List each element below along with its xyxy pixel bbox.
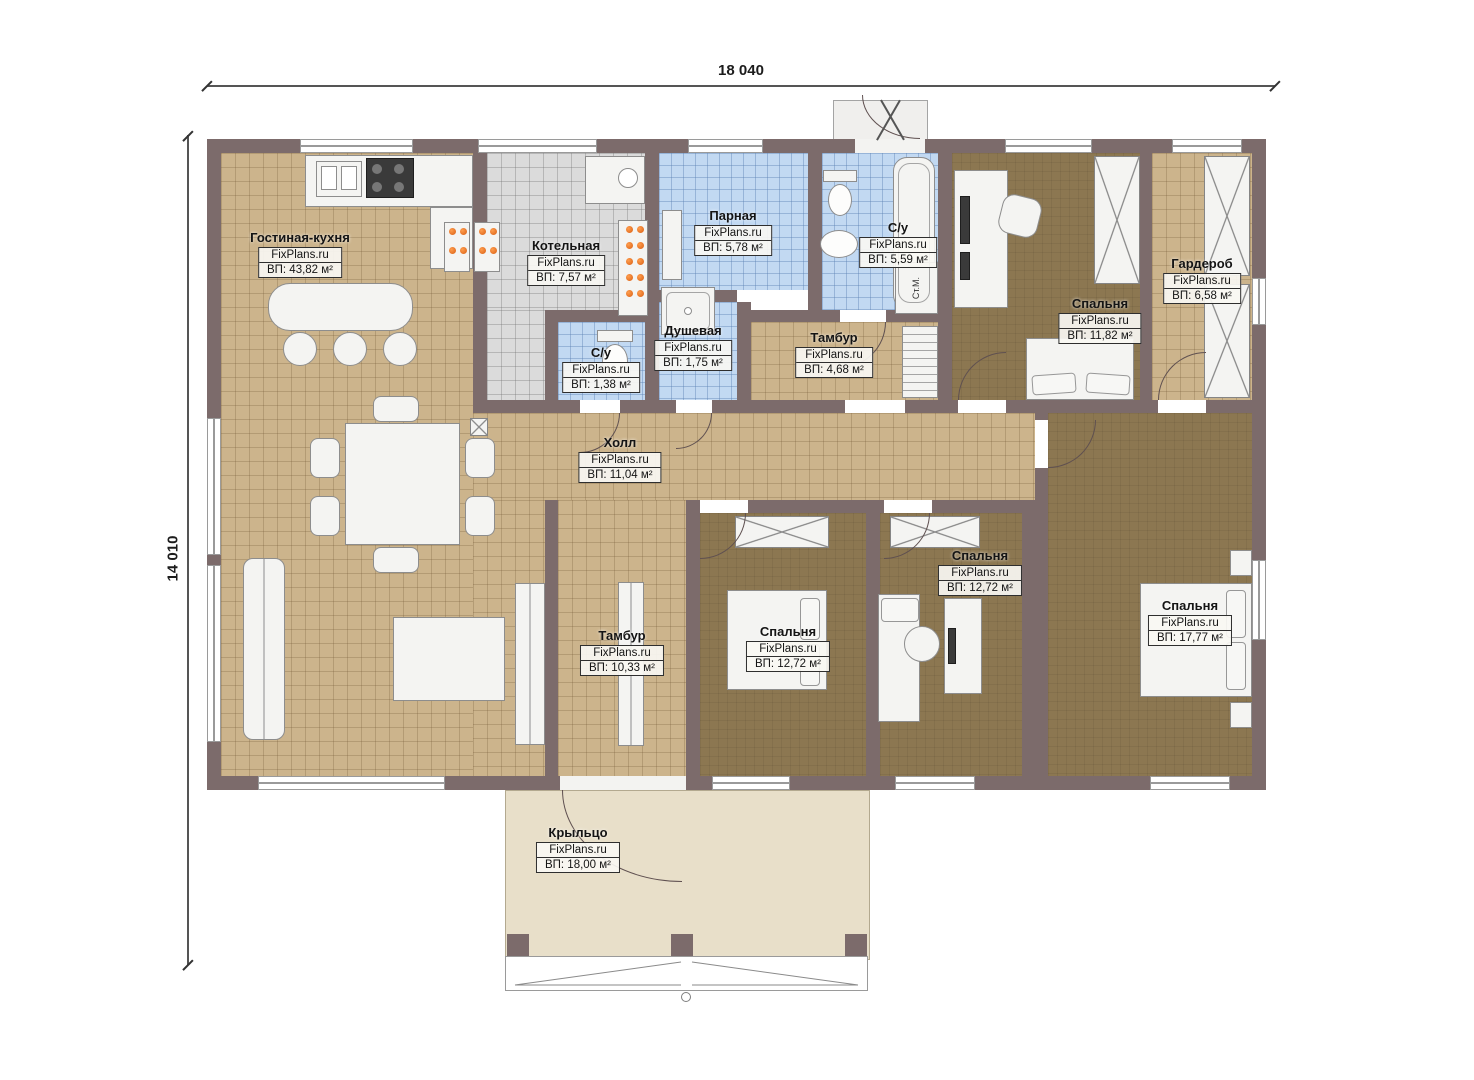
- room-label-boiler: Котельная FixPlans.ruВП: 7,57 м²: [527, 238, 605, 286]
- window: [1172, 139, 1242, 153]
- wall-segment: [1206, 400, 1252, 413]
- window: [1252, 560, 1266, 640]
- porch-pillar: [845, 934, 867, 956]
- wall-segment: [1006, 400, 1158, 413]
- wall-segment: [686, 500, 700, 776]
- wall-segment: [905, 400, 958, 413]
- dining-table: [345, 423, 460, 545]
- window: [207, 418, 221, 555]
- pillow: [1031, 372, 1076, 395]
- pillow: [881, 598, 919, 622]
- toilet-tank: [597, 330, 633, 342]
- dining-chair: [465, 496, 495, 536]
- nightstand: [1230, 550, 1252, 576]
- steam-bench: [662, 210, 682, 280]
- wardrobe: [735, 516, 829, 548]
- desk-monitor: [960, 196, 970, 244]
- wall-segment: [620, 400, 676, 413]
- tv-console: [515, 583, 545, 745]
- porch-pillar: [507, 934, 529, 956]
- room-label-hall: Холл FixPlans.ruВП: 11,04 м²: [578, 435, 661, 483]
- wall-segment: [712, 400, 845, 413]
- washing-machine-label: Ст.М.: [896, 264, 936, 312]
- wardrobe: [1094, 156, 1140, 284]
- window: [300, 139, 413, 153]
- wall-segment: [473, 400, 580, 413]
- manifold-valves: [449, 228, 467, 254]
- window: [207, 565, 221, 742]
- porch-pillar: [671, 934, 693, 956]
- dining-chair: [310, 496, 340, 536]
- room-label-bedroom-1: Спальня FixPlans.ruВП: 12,72 м²: [746, 624, 830, 672]
- bar-stool: [333, 332, 367, 366]
- stove-burner: [372, 182, 382, 192]
- pillow: [1226, 642, 1246, 690]
- wall-segment: [1140, 153, 1152, 400]
- hall-bench: [902, 326, 938, 398]
- room-label-steam-room: Парная FixPlans.ruВП: 5,78 м²: [694, 208, 772, 256]
- washbasin: [820, 230, 858, 258]
- toilet-bowl: [828, 184, 852, 216]
- room-label-bedroom-2: Спальня FixPlans.ruВП: 12,72 м²: [938, 548, 1022, 596]
- wall-segment: [1035, 468, 1048, 776]
- room-label-vestibule-bottom: Тамбур FixPlans.ruВП: 10,33 м²: [580, 628, 664, 676]
- dimension-line-left: [187, 135, 189, 965]
- dining-chair: [373, 396, 419, 422]
- shower-drain: [684, 307, 692, 315]
- room-label-wc-small: С/у FixPlans.ruВП: 1,38 м²: [562, 345, 640, 393]
- room-label-bedroom-right: Спальня FixPlans.ruВП: 17,77 м²: [1148, 598, 1232, 646]
- stove-burner: [394, 182, 404, 192]
- kitchen-island: [268, 283, 413, 331]
- room-label-bedroom-topright: Спальня FixPlans.ruВП: 11,82 м²: [1058, 296, 1141, 344]
- window: [1150, 776, 1230, 790]
- wall-segment: [545, 322, 558, 400]
- window: [895, 776, 975, 790]
- manifold-valves: [479, 228, 497, 254]
- coffee-table: [393, 617, 505, 701]
- wall-segment: [748, 500, 884, 513]
- bar-stool: [283, 332, 317, 366]
- floor-boiler-ext: [487, 310, 545, 400]
- dining-chair: [465, 438, 495, 478]
- dimension-line-top: [207, 85, 1275, 87]
- door-symbol: [470, 418, 488, 436]
- desk-printer: [960, 252, 970, 280]
- room-label-living-kitchen: Гостиная-кухня FixPlans.ruВП: 43,82 м²: [250, 230, 350, 278]
- window: [688, 139, 763, 153]
- dimension-height: 14 010: [164, 536, 181, 582]
- pillow: [1085, 372, 1130, 395]
- wall-segment: [938, 153, 952, 400]
- room-label-porch: Крыльцо FixPlans.ruВП: 18,00 м²: [536, 825, 620, 873]
- toilet-tank: [823, 170, 857, 182]
- room-label-wardrobe-room: Гардероб FixPlans.ruВП: 6,58 м²: [1163, 256, 1241, 304]
- stove-burner: [394, 164, 404, 174]
- dining-chair: [373, 547, 419, 573]
- window: [478, 139, 597, 153]
- wall-segment: [545, 500, 558, 776]
- manifold-valves: [626, 226, 644, 297]
- kitchen-sink-bowl: [321, 166, 337, 190]
- wall-segment: [1035, 413, 1048, 420]
- wall-segment: [1022, 513, 1035, 776]
- window: [1005, 139, 1092, 153]
- window: [258, 776, 445, 790]
- stove-burner: [372, 164, 382, 174]
- porch-steps: [505, 956, 868, 1004]
- floor-plan-canvas: 18 040 14 010: [0, 0, 1474, 1080]
- wall-outer-right: [1252, 139, 1266, 790]
- desk-monitor: [948, 628, 956, 664]
- room-label-vestibule-top: Тамбур FixPlans.ruВП: 4,68 м²: [795, 330, 873, 378]
- sofa: [243, 558, 285, 740]
- wall-segment: [737, 310, 840, 322]
- wall-segment: [473, 153, 487, 400]
- kitchen-sink-bowl: [341, 166, 357, 190]
- bar-stool: [383, 332, 417, 366]
- window: [1252, 278, 1266, 325]
- porch-door-opening: [560, 776, 686, 790]
- nightstand: [1230, 702, 1252, 728]
- window: [712, 776, 790, 790]
- desk-chair: [904, 626, 940, 662]
- entry-door-opening: [855, 139, 925, 153]
- dining-chair: [310, 438, 340, 478]
- wall-segment: [932, 500, 1035, 513]
- room-label-bathroom: С/у FixPlans.ruВП: 5,59 м²: [859, 220, 937, 268]
- floor-hall: [473, 413, 1035, 500]
- room-label-shower: Душевая FixPlans.ruВП: 1,75 м²: [654, 323, 732, 371]
- wall-segment: [808, 153, 822, 310]
- dimension-width: 18 040: [718, 62, 764, 79]
- boiler-sink: [618, 168, 638, 188]
